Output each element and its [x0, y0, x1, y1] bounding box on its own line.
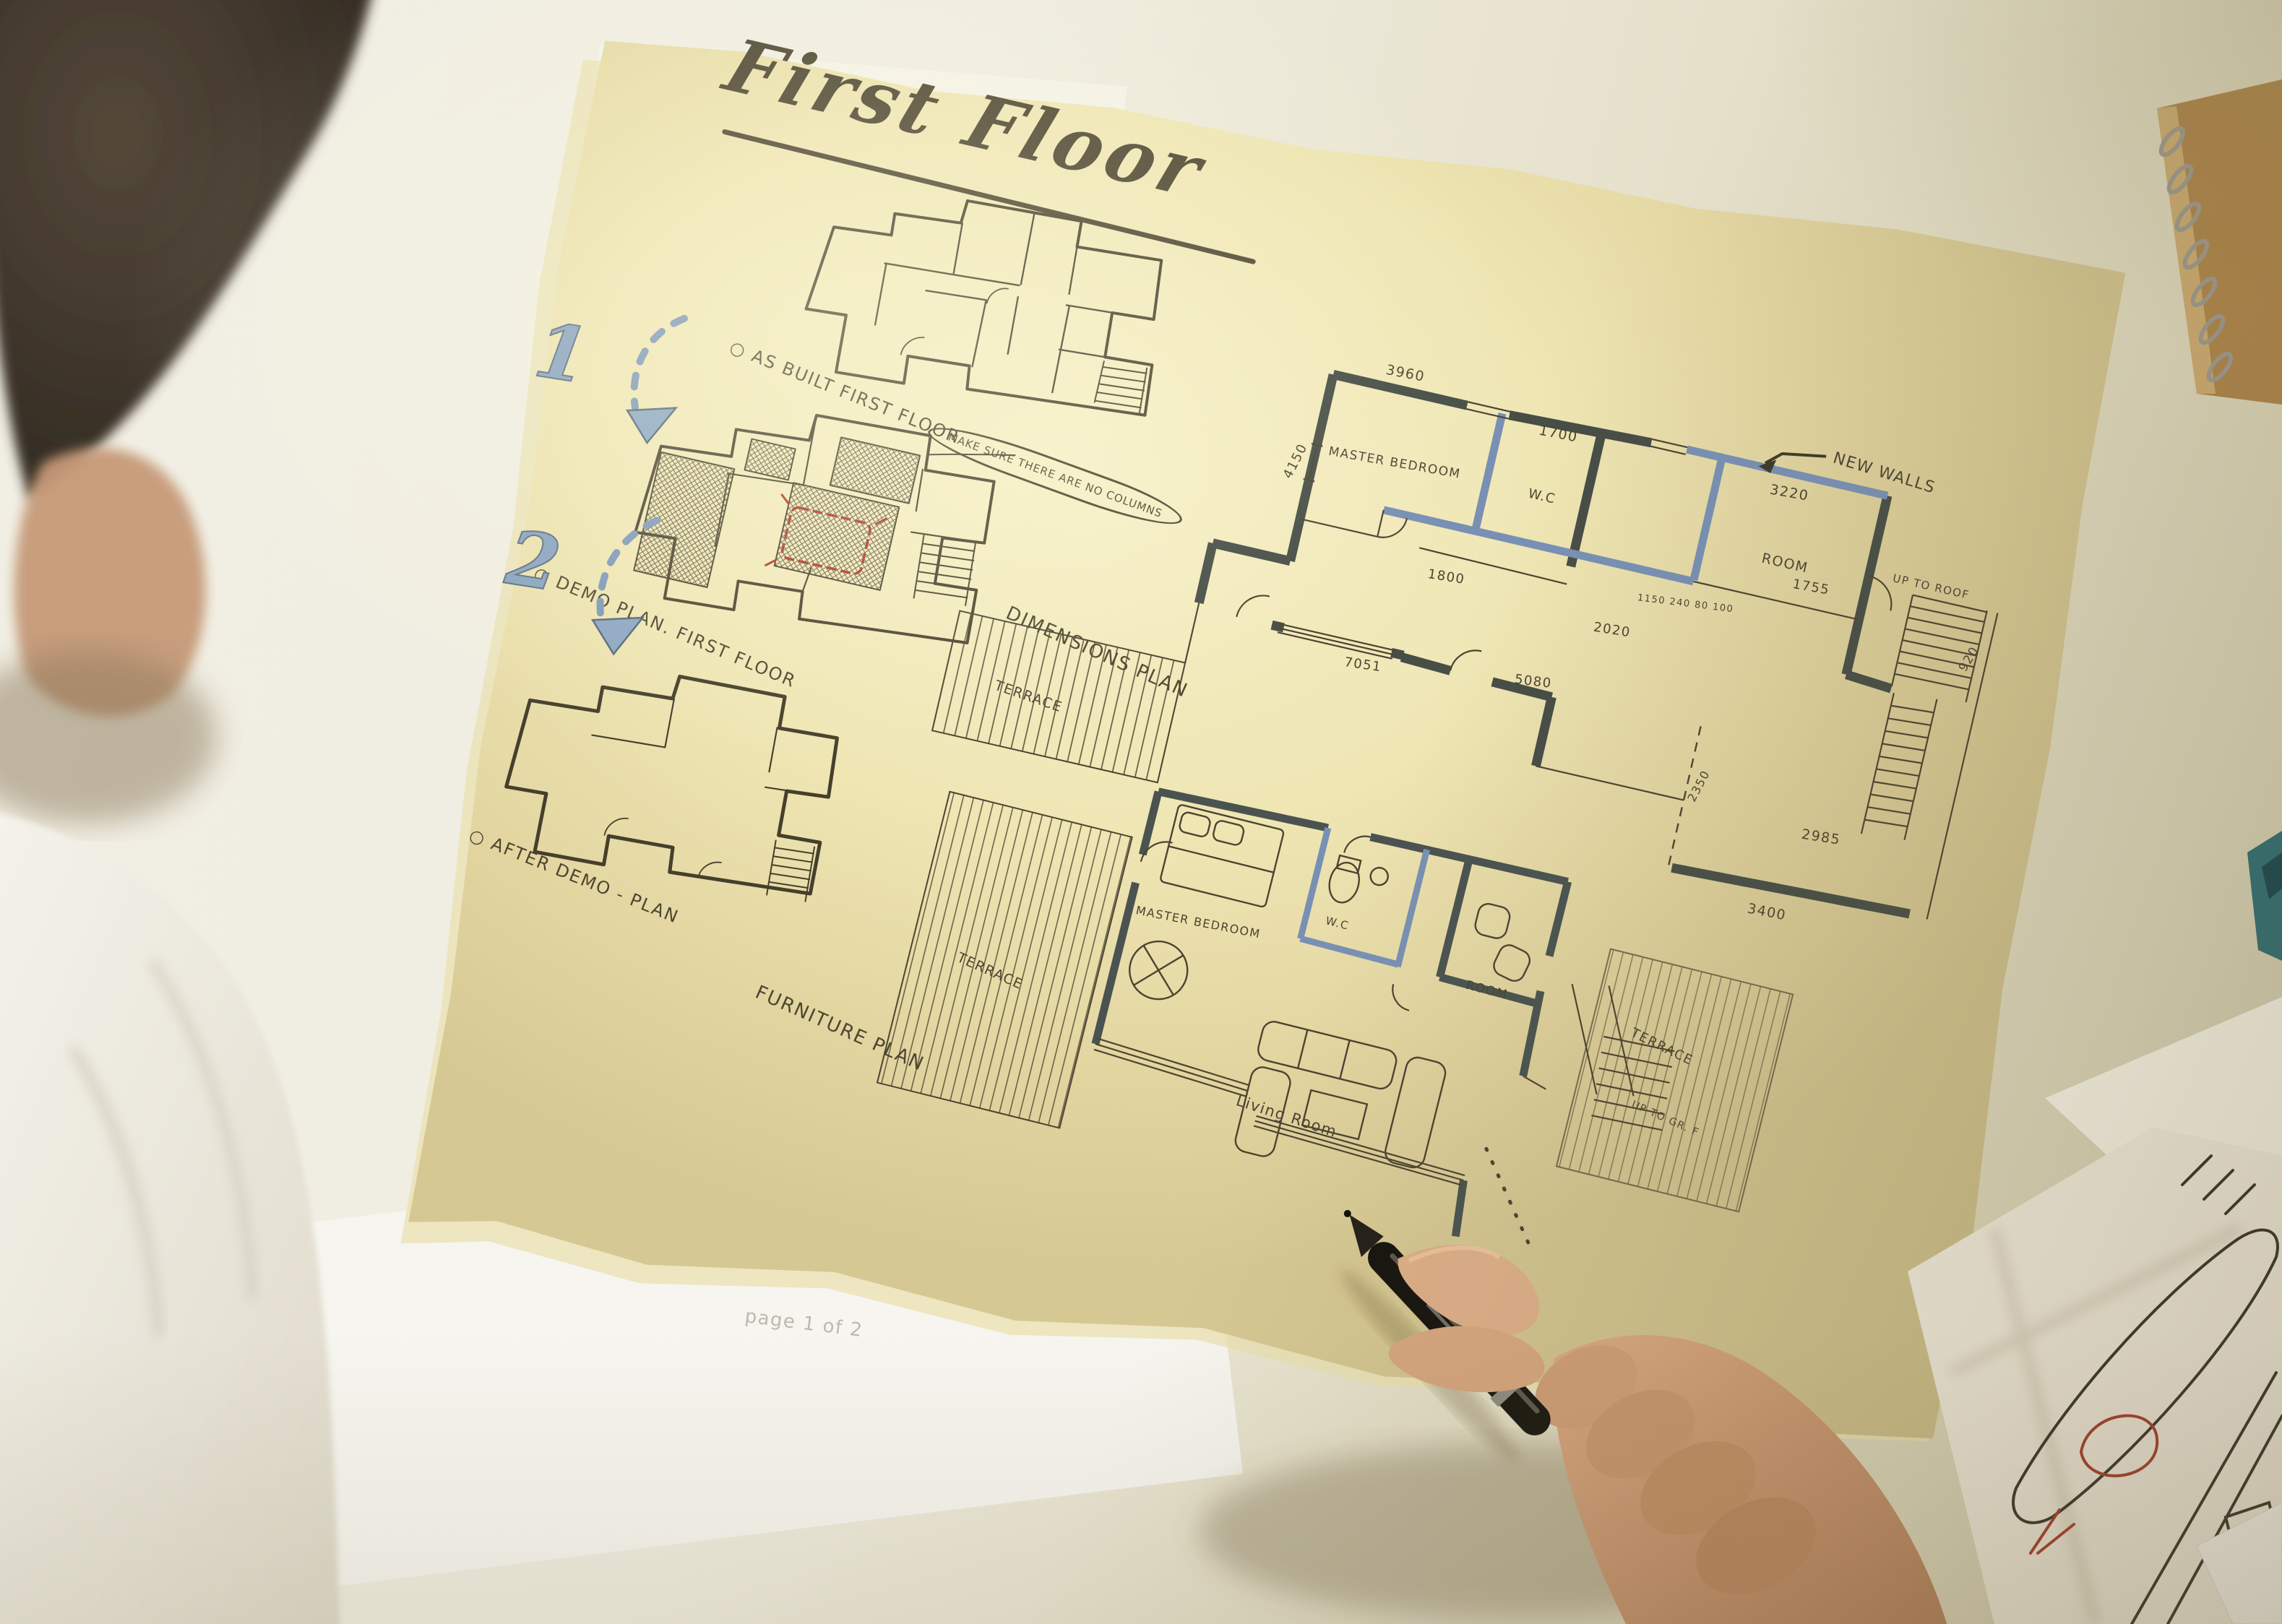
person-head — [0, 0, 376, 824]
shirt — [0, 809, 340, 1624]
crumpled-sketch-paper — [1908, 997, 2282, 1624]
hair — [0, 0, 376, 498]
photo-canvas: page 1 of 2 First Floor — [0, 0, 2282, 1624]
person-shoulder — [0, 809, 340, 1624]
foreground-items — [0, 0, 2282, 1624]
thumb — [1389, 1326, 1545, 1393]
